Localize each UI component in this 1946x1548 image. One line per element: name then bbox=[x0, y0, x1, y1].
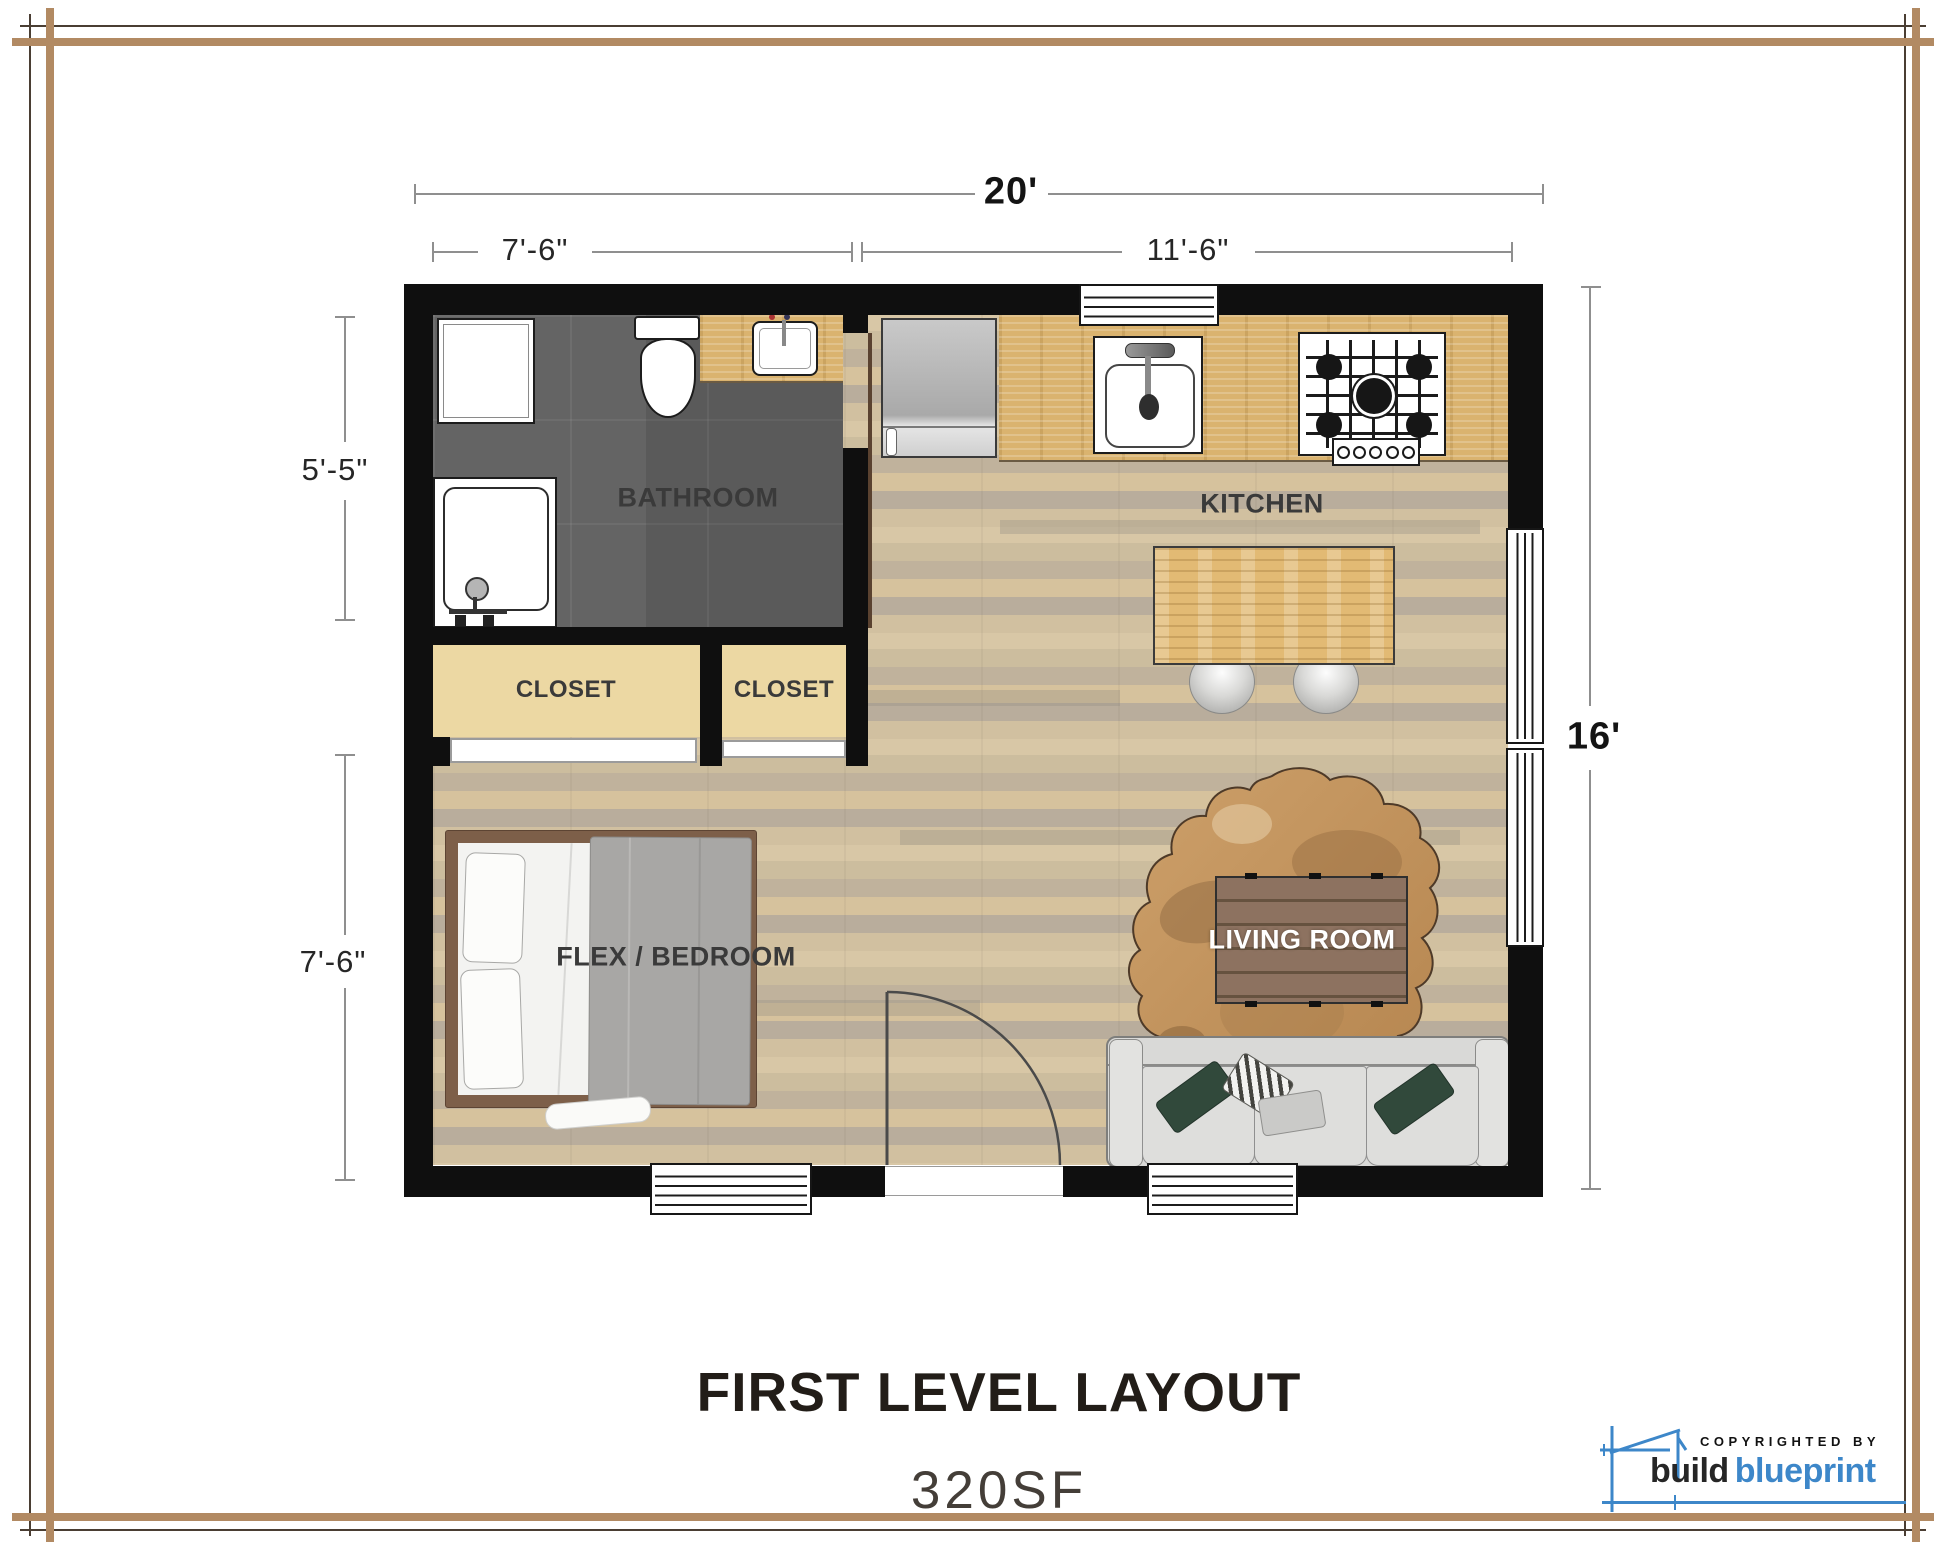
room-label-flex-bedroom: FLEX / BEDROOM bbox=[556, 942, 796, 973]
dim-tick bbox=[1581, 1188, 1601, 1190]
dim-line-overall-width-b bbox=[1048, 193, 1543, 195]
kitchen-sink bbox=[1093, 336, 1203, 454]
window-mullions bbox=[1152, 1168, 1293, 1210]
room-label-living-room: LIVING ROOM bbox=[1209, 925, 1396, 956]
sofa-arm-right bbox=[1475, 1039, 1509, 1167]
sofa bbox=[1106, 1036, 1510, 1168]
bedroom-window bbox=[650, 1163, 812, 1215]
washer-appliance bbox=[437, 318, 535, 424]
closet-left-stub-wall bbox=[433, 737, 450, 766]
frame-line-top-thin bbox=[20, 25, 1926, 27]
closet-left-door bbox=[450, 738, 697, 763]
window-mullions bbox=[1084, 289, 1214, 321]
dim-line-bedroom-height-b bbox=[344, 988, 346, 1180]
shower-knob bbox=[455, 615, 466, 626]
closet-mid-wall bbox=[700, 645, 722, 766]
frame-line-left bbox=[46, 8, 54, 1542]
cooktop-controls bbox=[1332, 438, 1420, 466]
dim-line-bath-height-a bbox=[344, 317, 346, 442]
knob bbox=[1337, 446, 1350, 459]
dim-tick bbox=[1511, 242, 1513, 262]
dim-line-bedroom-height-a bbox=[344, 755, 346, 935]
shower-valve-bar bbox=[449, 609, 507, 614]
room-label-closet-right: CLOSET bbox=[734, 676, 834, 704]
dim-tick bbox=[335, 619, 355, 621]
refrigerator-door-line bbox=[883, 426, 995, 428]
gas-cooktop bbox=[1298, 332, 1446, 456]
wall-top-left bbox=[404, 284, 1079, 315]
dim-label-overall-width: 20' bbox=[984, 171, 1038, 214]
frame-line-right-thin bbox=[1904, 14, 1906, 1536]
room-label-kitchen: KITCHEN bbox=[1200, 489, 1324, 520]
dim-line-overall-width-a bbox=[415, 193, 975, 195]
brand-word-build: build bbox=[1650, 1452, 1729, 1491]
burner bbox=[1406, 354, 1432, 380]
burner bbox=[1406, 412, 1432, 438]
right-window-lower bbox=[1506, 748, 1544, 947]
bathroom-bottom-wall bbox=[404, 627, 868, 645]
burner bbox=[1316, 412, 1342, 438]
dim-line-width-left-a bbox=[433, 251, 478, 253]
logo-underline-tick bbox=[1674, 1495, 1676, 1510]
dim-label-bedroom-height: 7'-6" bbox=[300, 944, 367, 980]
dim-line-overall-height-a bbox=[1589, 287, 1591, 706]
shower-head bbox=[465, 577, 489, 601]
wall-left bbox=[404, 284, 433, 1197]
table-foot bbox=[1309, 873, 1321, 879]
dim-tick bbox=[1542, 184, 1544, 204]
table-foot bbox=[1371, 873, 1383, 879]
floor-plank-shade bbox=[1000, 520, 1480, 534]
dim-tick bbox=[851, 242, 853, 262]
frame-line-bottom-thin bbox=[20, 1529, 1926, 1531]
refrigerator-handle bbox=[886, 428, 897, 456]
divider-wall-lower bbox=[843, 448, 868, 628]
dim-label-width-right: 11'-6" bbox=[1147, 232, 1230, 268]
dim-line-bath-height-b bbox=[344, 500, 346, 620]
window-mullions bbox=[655, 1168, 807, 1210]
page-subtitle-area: 320SF bbox=[599, 1460, 1399, 1521]
wall-top-right bbox=[1219, 284, 1543, 315]
room-label-bathroom: BATHROOM bbox=[618, 483, 779, 514]
kitchen-window bbox=[1079, 284, 1219, 326]
brand-word-blueprint: blueprint bbox=[1735, 1452, 1876, 1491]
dim-line-overall-height-b bbox=[1589, 770, 1591, 1189]
door-threshold-line bbox=[885, 1166, 1063, 1167]
dim-line-width-right-a bbox=[862, 251, 1122, 253]
room-label-closet-left: CLOSET bbox=[516, 676, 616, 704]
living-room-window bbox=[1147, 1163, 1298, 1215]
shower-pan bbox=[443, 487, 549, 611]
closet-right-door bbox=[722, 740, 846, 758]
wall-bottom-c bbox=[1063, 1166, 1147, 1197]
dim-tick bbox=[335, 1179, 355, 1181]
washer-inner-line bbox=[443, 324, 529, 418]
dim-label-width-left: 7'-6" bbox=[502, 232, 569, 268]
table-foot bbox=[1245, 1001, 1257, 1007]
knob bbox=[1369, 446, 1382, 459]
shower-stall bbox=[433, 477, 557, 628]
window-mullions bbox=[1511, 753, 1539, 942]
kitchen-sink-drain bbox=[1139, 394, 1159, 420]
dim-tick bbox=[335, 754, 355, 756]
dim-tick bbox=[335, 316, 355, 318]
dim-tick bbox=[1581, 286, 1601, 288]
wall-bottom-a bbox=[404, 1166, 650, 1197]
toilet-tank bbox=[634, 316, 700, 340]
closet-right-wall bbox=[846, 645, 868, 766]
entry-door bbox=[883, 989, 1065, 1167]
bed-pillow bbox=[462, 852, 526, 964]
right-window-upper bbox=[1506, 528, 1544, 744]
divider-wall-upper bbox=[843, 315, 868, 333]
knob bbox=[1402, 446, 1415, 459]
brand-logo[interactable]: build blueprint bbox=[1650, 1452, 1876, 1491]
burner bbox=[1316, 354, 1342, 380]
bed-pillow bbox=[460, 968, 524, 1090]
sofa-arm-left bbox=[1109, 1039, 1143, 1167]
frame-line-top bbox=[12, 38, 1934, 46]
sliding-door-leaf bbox=[868, 333, 872, 628]
wall-right-lower bbox=[1508, 945, 1543, 1197]
copyright-label: COPYRIGHTED BY bbox=[1700, 1434, 1880, 1449]
wall-bottom-d bbox=[1298, 1166, 1543, 1197]
frame-line-right bbox=[1912, 8, 1920, 1542]
faucet-stem bbox=[782, 320, 786, 346]
dim-tick bbox=[414, 184, 416, 204]
wall-bottom-b bbox=[812, 1166, 885, 1197]
floor-plan-page: 20' 7'-6" 11'-6" 5'-5" 7'-6" 16' bbox=[0, 0, 1946, 1548]
kitchen-faucet-stem bbox=[1145, 356, 1151, 398]
dim-line-width-left-b bbox=[592, 251, 852, 253]
knob bbox=[1353, 446, 1366, 459]
window-mullions bbox=[1511, 533, 1539, 739]
page-title: FIRST LEVEL LAYOUT bbox=[599, 1360, 1399, 1424]
table-foot bbox=[1371, 1001, 1383, 1007]
table-foot bbox=[1245, 873, 1257, 879]
dim-line-width-right-b bbox=[1255, 251, 1512, 253]
burner-center bbox=[1356, 378, 1392, 414]
kitchen-island bbox=[1153, 546, 1395, 665]
dim-label-bath-height: 5'-5" bbox=[302, 452, 369, 488]
frame-line-left-thin bbox=[29, 14, 31, 1536]
shower-knob bbox=[483, 615, 494, 626]
refrigerator bbox=[881, 318, 997, 458]
door-threshold-line bbox=[885, 1195, 1063, 1196]
dim-tick bbox=[861, 242, 863, 262]
table-foot bbox=[1309, 1001, 1321, 1007]
toilet-bowl bbox=[640, 338, 696, 418]
dim-tick bbox=[432, 242, 434, 262]
wall-right-upper bbox=[1508, 284, 1543, 530]
logo-underline bbox=[1602, 1501, 1906, 1504]
knob bbox=[1386, 446, 1399, 459]
dim-label-overall-height: 16' bbox=[1567, 716, 1621, 759]
